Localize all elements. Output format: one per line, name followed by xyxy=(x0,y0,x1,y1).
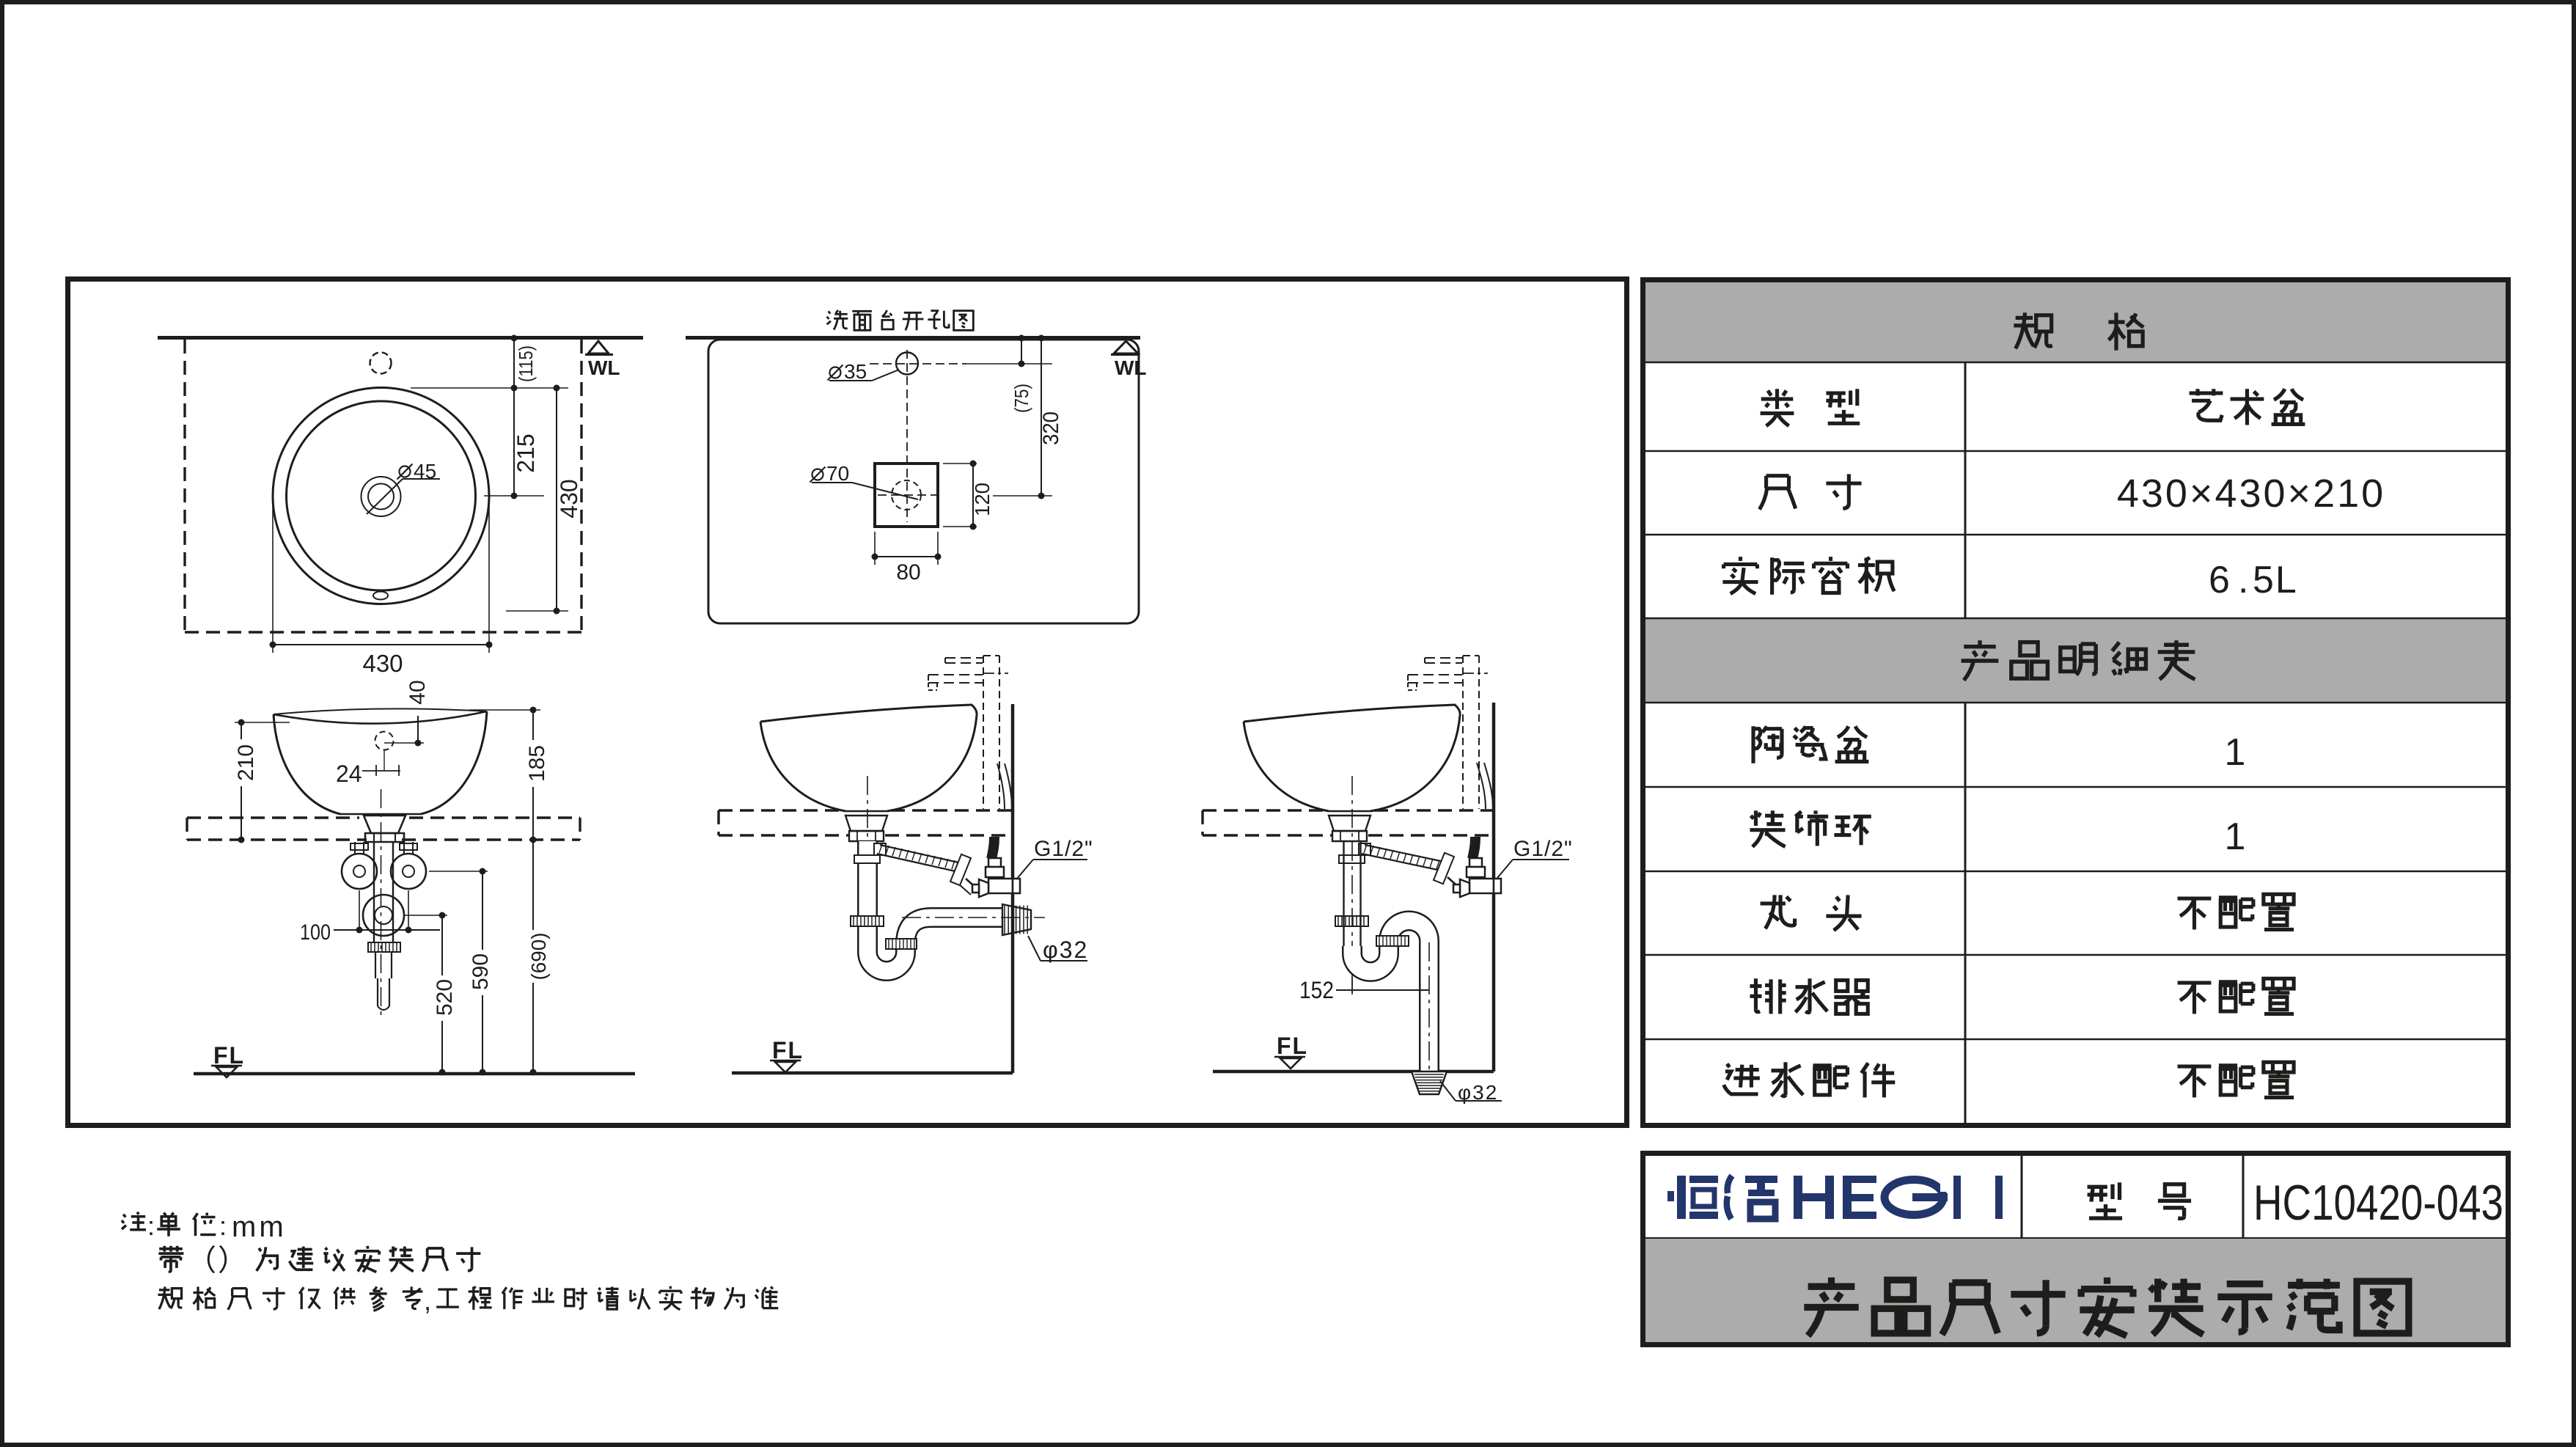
svg-text:,: , xyxy=(424,1286,431,1316)
svg-text:210: 210 xyxy=(234,744,258,781)
svg-text:mm: mm xyxy=(232,1211,287,1243)
svg-text:35: 35 xyxy=(844,360,867,383)
svg-text:320: 320 xyxy=(1039,411,1063,445)
svg-text:80: 80 xyxy=(896,560,920,585)
svg-text:40: 40 xyxy=(406,680,430,704)
svg-text::: : xyxy=(219,1211,227,1241)
svg-text:(75): (75) xyxy=(1010,384,1032,413)
svg-text:430: 430 xyxy=(362,650,403,677)
svg-text:430×430×210: 430×430×210 xyxy=(2117,472,2385,516)
svg-text:215: 215 xyxy=(513,433,539,472)
svg-text:1: 1 xyxy=(2225,731,2246,774)
svg-text:45: 45 xyxy=(414,460,436,483)
svg-text:590: 590 xyxy=(469,953,493,990)
svg-text:185: 185 xyxy=(525,745,549,782)
svg-text:6: 6 xyxy=(2209,559,2230,601)
svg-text:G1/2": G1/2" xyxy=(1513,837,1573,861)
svg-text:WL: WL xyxy=(588,356,620,379)
svg-text:120: 120 xyxy=(971,483,994,516)
svg-text:520: 520 xyxy=(433,979,457,1016)
svg-text:φ32: φ32 xyxy=(1043,937,1088,963)
svg-text:HC10420-043: HC10420-043 xyxy=(2253,1175,2503,1231)
svg-text:FL: FL xyxy=(213,1042,245,1069)
svg-text:1: 1 xyxy=(2225,816,2246,858)
svg-text:(115): (115) xyxy=(515,345,537,382)
svg-text::: : xyxy=(147,1211,155,1241)
svg-text:430: 430 xyxy=(556,479,582,518)
svg-text:152: 152 xyxy=(1299,977,1334,1003)
svg-text:FL: FL xyxy=(1277,1033,1308,1059)
svg-text:5L: 5L xyxy=(2253,559,2298,601)
svg-text:（）: （） xyxy=(187,1245,249,1277)
svg-text:.: . xyxy=(2238,559,2248,601)
svg-text:WL: WL xyxy=(1115,356,1147,379)
svg-text:G1/2": G1/2" xyxy=(1034,837,1093,861)
svg-text:70: 70 xyxy=(826,462,849,485)
svg-text:φ32: φ32 xyxy=(1458,1081,1498,1104)
svg-text:24: 24 xyxy=(336,761,362,787)
svg-text:100: 100 xyxy=(300,920,331,945)
svg-text:FL: FL xyxy=(772,1037,804,1063)
svg-text:(690): (690) xyxy=(527,933,550,981)
